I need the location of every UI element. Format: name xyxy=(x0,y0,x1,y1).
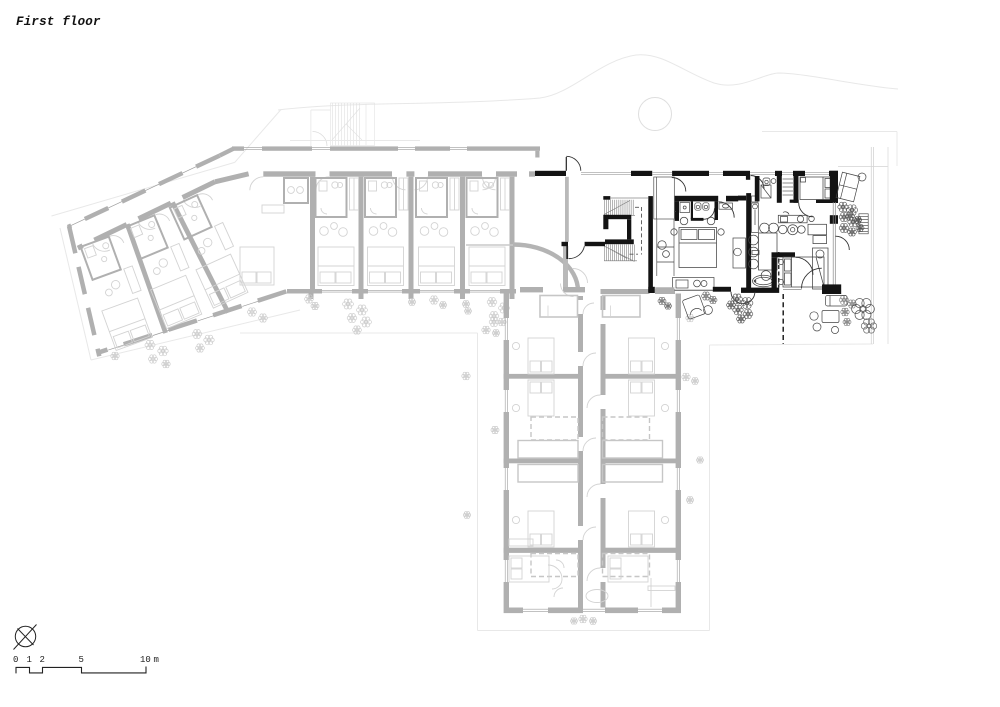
svg-text:5: 5 xyxy=(79,655,84,665)
svg-text:1: 1 xyxy=(27,655,32,665)
svg-text:10: 10 xyxy=(140,655,151,665)
svg-text:2: 2 xyxy=(40,655,45,665)
svg-text:First floor: First floor xyxy=(16,15,101,29)
svg-text:0: 0 xyxy=(13,655,18,665)
svg-text:m: m xyxy=(154,655,159,665)
